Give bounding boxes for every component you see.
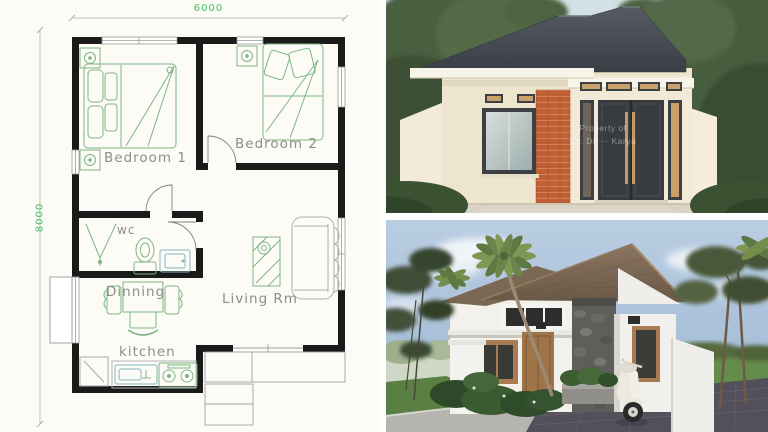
room-label-bedroom2: Bedroom 2 bbox=[235, 136, 318, 152]
floor-plan-drawing bbox=[0, 0, 380, 432]
room-label-living: Living Rm bbox=[222, 291, 298, 307]
bed-1 bbox=[84, 64, 176, 148]
walls bbox=[72, 37, 345, 393]
wc-sink bbox=[160, 250, 190, 272]
house-plan-collage: 6000 8000 Bedroom 1 Bedroom 2 wc Dinning… bbox=[0, 0, 768, 432]
door-transom-windows bbox=[580, 82, 682, 91]
upper-window-band bbox=[502, 304, 566, 330]
dimension-height-label: 8000 bbox=[35, 196, 46, 240]
canopy bbox=[448, 330, 574, 335]
watermark-line1: Property of bbox=[538, 122, 668, 135]
watermark: Property of Cv. Di···· Karya bbox=[538, 122, 668, 148]
room-label-wc: wc bbox=[117, 223, 135, 237]
side-elevation-render bbox=[386, 220, 768, 432]
room-label-dinning: Dinning bbox=[106, 284, 165, 300]
stove bbox=[159, 363, 197, 387]
side-render-drawing bbox=[386, 220, 768, 432]
room-label-bedroom1: Bedroom 1 bbox=[104, 150, 187, 166]
floor-plan-panel: 6000 8000 Bedroom 1 Bedroom 2 wc Dinning… bbox=[0, 0, 380, 432]
entry-double-door bbox=[598, 100, 664, 200]
left-window bbox=[479, 108, 539, 178]
shower-symbol bbox=[86, 224, 116, 266]
bay-window bbox=[50, 277, 72, 343]
fridge bbox=[80, 357, 108, 386]
toilet bbox=[134, 238, 156, 274]
room-label-kitchen: kitchen bbox=[119, 344, 176, 360]
watermark-line2: Cv. Di···· Karya bbox=[538, 135, 668, 148]
bed-2 bbox=[263, 44, 323, 140]
right-parapet-wall bbox=[672, 338, 714, 432]
porch-and-steps bbox=[205, 344, 345, 425]
fascia-left bbox=[410, 68, 594, 78]
front-render-drawing bbox=[386, 0, 768, 213]
sofa bbox=[292, 217, 339, 299]
kitchen-sink bbox=[115, 365, 157, 384]
dimension-width-label: 6000 bbox=[72, 3, 345, 14]
rug bbox=[253, 237, 280, 286]
front-elevation-render: Property of Cv. Di···· Karya bbox=[386, 0, 768, 213]
